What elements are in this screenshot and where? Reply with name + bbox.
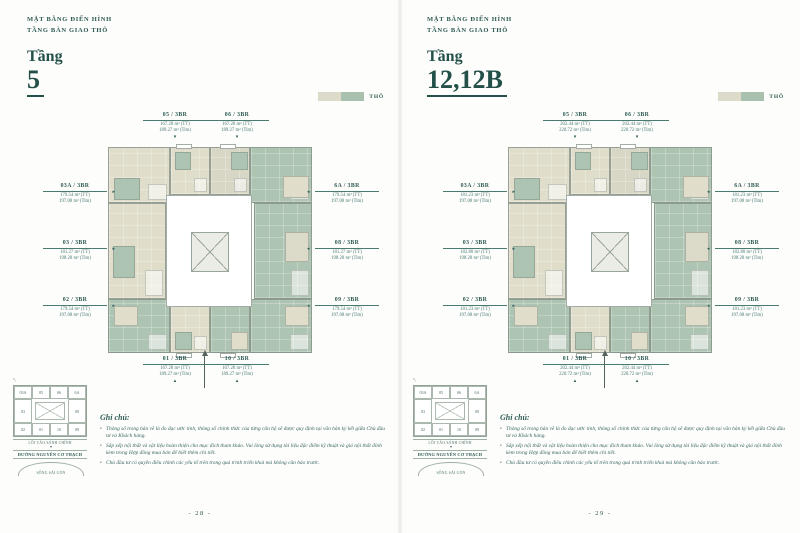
plan-unit-05 [570,147,610,195]
unit-label-09: 09 / 3BR 179.54 m² (TT) 197.08 m² (Tim) … [315,297,379,319]
page-right: MẶT BẰNG ĐIỂN HÌNH TẦNG BÀN GIAO THÔ Tần… [400,0,800,533]
page-title-line1: MẶT BẰNG ĐIỂN HÌNH [427,16,512,23]
page-title-line2: TẦNG BÀN GIAO THÔ [27,27,108,34]
plan-unit-02 [508,299,570,353]
unit-label-6a: 6A / 3BR 181.23 m² (TT) 197.08 m² (Tim) … [715,183,779,205]
minimap-grid: 03A 05 06 6A 03 08 02 01 10 09 [413,385,487,437]
minimap-grid: 03A 05 06 6A 03 08 02 01 10 09 [13,385,87,437]
plan-unit-03a [508,147,570,203]
unit-id: 03A / 3BR [443,183,507,192]
floor-number: 5 [27,67,44,97]
minimap-cell: 03 [14,399,32,423]
unit-label-05: 05 / 3BR 167.28 m² (TT) 189.27 m² (Tim) … [143,112,207,140]
plan-unit-03a [108,147,170,203]
river-curve: SÔNG SÀI GÒN [18,462,84,476]
north-arrow-icon [604,355,605,388]
page-number: - 28 - [0,510,400,517]
plan-unit-08 [654,203,712,299]
floor-word: Tầng [27,48,63,66]
unit-id: 06 / 3BR [605,112,669,121]
unit-label-08: 08 / 3BR 182.80 m² (TT) 198.28 m² (Tim) … [715,240,779,262]
unit-area-tim: 197.08 m² (Tim) [315,313,379,319]
minimap-cell: 02 [414,423,432,436]
unit-id: 08 / 3BR [315,240,379,249]
minimap-cell: 08 [468,399,486,423]
leader-up-icon: ▴ [143,379,207,384]
page-number: - 29 - [400,510,800,517]
page-title-line2: TẦNG BÀN GIAO THÔ [427,27,508,34]
plan-unit-01 [570,305,610,353]
unit-id: 01 / 3BR [543,356,607,365]
plan-unit-03 [508,203,566,299]
minimap-cell: 6A [468,386,486,399]
unit-label-02: 02 / 3BR 181.23 m² (TT) 197.08 m² (Tim) … [443,297,507,319]
unit-id: 10 / 3BR [605,356,669,365]
pen-mark-icon: ↑ [11,376,19,384]
note-text: Chủ đầu tư có quyền điều chỉnh các yếu t… [506,460,720,467]
core-icon [191,232,229,272]
minimap-cell: 01 [432,423,450,436]
unit-area-tim: 220.72 m² (Tim) [543,128,607,134]
floor-number: 12,12B [427,67,507,97]
note-text: Sắp xếp nội thất và vật liệu hoàn thiện … [106,443,388,457]
unit-id: 08 / 3BR [715,240,779,249]
unit-label-01: 01 / 3BR 167.28 m² (TT) 189.27 m² (Tim) … [143,356,207,384]
leader-right-icon: ▸ [512,304,515,309]
unit-area-tim: 197.08 m² (Tim) [443,199,507,205]
leader-up-icon: ▴ [543,379,607,384]
unit-area-tim: 220.72 m² (Tim) [543,372,607,378]
plan-unit-6a [250,147,312,203]
plan-unit-09 [650,299,712,353]
unit-id: 02 / 3BR [43,297,107,306]
note-item: • Sắp xếp nội thất và vật liệu hoàn thiệ… [500,443,788,457]
core-icon [35,402,65,420]
leader-right-icon: ▸ [112,190,115,195]
leader-down-icon: ▾ [543,135,607,140]
minimap-cell: 01 [32,423,50,436]
notes-section: Ghi chú: • Thông số trong bản vẽ là đo đ… [100,413,388,470]
leader-up-icon: ▴ [205,379,269,384]
courtyard [166,195,252,307]
leader-down-icon: ▾ [205,135,269,140]
minimap-cell: 10 [450,423,468,436]
plan-unit-10 [610,305,650,353]
minimap-cell: 09 [468,423,486,436]
floor-plan [108,147,312,353]
unit-id: 09 / 3BR [715,297,779,306]
leader-right-icon: ▸ [512,247,515,252]
plan-unit-05 [170,147,210,195]
unit-area-tim: 197.08 m² (Tim) [443,313,507,319]
unit-area-tim: 189.27 m² (Tim) [205,372,269,378]
unit-id: 03 / 3BR [443,240,507,249]
plan-unit-06 [610,147,650,195]
leader-left-icon: ◂ [307,247,310,252]
minimap-cell: 05 [32,386,50,399]
legend-swatch-green [741,92,764,101]
leader-up-icon: ▴ [605,379,669,384]
minimap-cell: 05 [432,386,450,399]
plan-unit-02 [108,299,170,353]
site-minimap: ↑ 03A 05 06 6A 03 08 02 01 10 09 [13,385,89,476]
north-arrow-icon [204,355,205,388]
unit-label-03: 03 / 3BR 181.27 m² (TT) 198.28 m² (Tim) … [43,240,107,262]
unit-id: 01 / 3BR [143,356,207,365]
minimap-cell: 03A [414,386,432,399]
note-item: • Chủ đầu tư có quyền điều chỉnh các yếu… [500,460,788,467]
unit-area-tim: 197.08 m² (Tim) [715,313,779,319]
plan-unit-03 [108,203,166,299]
unit-label-03a: 03A / 3BR 179.54 m² (TT) 197.08 m² (Tim)… [43,183,107,205]
leader-right-icon: ▸ [512,190,515,195]
unit-id: 06 / 3BR [205,112,269,121]
legend-swatch-beige [718,92,741,101]
unit-id: 6A / 3BR [715,183,779,192]
unit-id: 09 / 3BR [315,297,379,306]
legend: THÔ [718,92,784,101]
river-curve: SÔNG SÀI GÒN [418,462,484,476]
unit-label-6a: 6A / 3BR 179.54 m² (TT) 197.08 m² (Tim) … [315,183,379,205]
unit-area-tim: 198.28 m² (Tim) [715,256,779,262]
plan-unit-09 [250,299,312,353]
minimap-cell: 10 [50,423,68,436]
unit-area-tim: 197.08 m² (Tim) [43,313,107,319]
core-icon [435,402,465,420]
notes-title: Ghi chú: [100,413,388,422]
legend-swatch-green [341,92,364,101]
minimap-cell: 03A [14,386,32,399]
river-label: SÔNG SÀI GÒN [419,471,483,475]
page-left: MẶT BẰNG ĐIỂN HÌNH TẦNG BÀN GIAO THÔ Tần… [0,0,400,533]
unit-area-tim: 198.28 m² (Tim) [443,256,507,262]
unit-id: 10 / 3BR [205,356,269,365]
minimap-cell: 08 [68,399,86,423]
page-title-line1: MẶT BẰNG ĐIỂN HÌNH [27,16,112,23]
leader-left-icon: ◂ [707,304,710,309]
balcony-tab [220,144,236,149]
minimap-cell: 03 [414,399,432,423]
unit-label-03a: 03A / 3BR 181.23 m² (TT) 197.08 m² (Tim)… [443,183,507,205]
minimap-cell: 6A [68,386,86,399]
unit-area-tim: 189.27 m² (Tim) [143,128,207,134]
street-label: ĐƯỜNG NGUYỄN CƠ THẠCH [13,450,87,459]
note-item: • Sắp xếp nội thất và vật liệu hoàn thiệ… [100,443,388,457]
river-label: SÔNG SÀI GÒN [19,471,83,475]
unit-area-tim: 220.72 m² (Tim) [605,128,669,134]
unit-id: 05 / 3BR [543,112,607,121]
legend-label: THÔ [369,94,384,100]
core-icon [591,232,629,272]
unit-label-06: 06 / 3BR 167.28 m² (TT) 189.27 m² (Tim) … [205,112,269,140]
plan-unit-10 [210,305,250,353]
unit-label-10: 10 / 3BR 202.44 m² (TT) 220.72 m² (Tim) … [605,356,669,384]
unit-area-tim: 198.28 m² (Tim) [43,256,107,262]
brochure-spread: MẶT BẰNG ĐIỂN HÌNH TẦNG BÀN GIAO THÔ Tần… [0,0,800,533]
unit-area-tim: 197.08 m² (Tim) [315,199,379,205]
leader-left-icon: ◂ [707,247,710,252]
leader-down-icon: ▾ [143,135,207,140]
plan-unit-6a [650,147,712,203]
minimap-cell: 06 [450,386,468,399]
courtyard [566,195,652,307]
note-item: • Thông số trong bản vẽ là đo đạc ước tí… [100,426,388,440]
legend: THÔ [318,92,384,101]
note-item: • Chủ đầu tư có quyền điều chỉnh các yếu… [100,460,388,467]
floor-word: Tầng [427,48,463,66]
note-text: Thông số trong bản vẽ là đo đạc ước tính… [106,426,388,440]
unit-area-tim: 197.08 m² (Tim) [715,199,779,205]
unit-label-08: 08 / 3BR 181.27 m² (TT) 198.28 m² (Tim) … [315,240,379,262]
note-text: Sắp xếp nội thất và vật liệu hoàn thiện … [506,443,788,457]
leader-right-icon: ▸ [112,247,115,252]
unit-label-06: 06 / 3BR 202.44 m² (TT) 220.72 m² (Tim) … [605,112,669,140]
leader-left-icon: ◂ [307,304,310,309]
leader-left-icon: ◂ [707,190,710,195]
unit-area-tim: 198.28 m² (Tim) [315,256,379,262]
note-text: Thông số trong bản vẽ là đo đạc ước tính… [506,426,788,440]
unit-id: 6A / 3BR [315,183,379,192]
unit-area-tim: 189.27 m² (Tim) [143,372,207,378]
notes-title: Ghi chú: [500,413,788,422]
site-minimap: ↑ 03A 05 06 6A 03 08 02 01 10 09 [413,385,489,476]
legend-swatch-beige [318,92,341,101]
unit-id: 05 / 3BR [143,112,207,121]
pen-mark-icon: ↑ [411,376,419,384]
floor-plan [508,147,712,353]
notes-section: Ghi chú: • Thông số trong bản vẽ là đo đ… [500,413,788,470]
minimap-cell: 02 [14,423,32,436]
street-label: ĐƯỜNG NGUYỄN CƠ THẠCH [413,450,487,459]
note-text: Chủ đầu tư có quyền điều chỉnh các yếu t… [106,460,320,467]
unit-area-tim: 189.27 m² (Tim) [205,128,269,134]
page-gutter [397,0,403,533]
balcony-tab [576,144,592,149]
leader-left-icon: ◂ [307,190,310,195]
balcony-tab [176,144,192,149]
unit-id: 03 / 3BR [43,240,107,249]
unit-label-03: 03 / 3BR 182.80 m² (TT) 198.28 m² (Tim) … [443,240,507,262]
unit-label-05: 05 / 3BR 202.44 m² (TT) 220.72 m² (Tim) … [543,112,607,140]
unit-area-tim: 220.72 m² (Tim) [605,372,669,378]
leader-right-icon: ▸ [112,304,115,309]
balcony-tab [620,144,636,149]
entrance-caret-icon: ▾ [413,445,489,449]
unit-label-10: 10 / 3BR 167.28 m² (TT) 189.27 m² (Tim) … [205,356,269,384]
plan-unit-01 [170,305,210,353]
legend-label: THÔ [769,94,784,100]
unit-label-01: 01 / 3BR 202.44 m² (TT) 220.72 m² (Tim) … [543,356,607,384]
minimap-cell: 09 [68,423,86,436]
unit-area-tim: 197.08 m² (Tim) [43,199,107,205]
unit-label-02: 02 / 3BR 179.54 m² (TT) 197.08 m² (Tim) … [43,297,107,319]
entrance-caret-icon: ▾ [13,445,89,449]
unit-label-09: 09 / 3BR 181.23 m² (TT) 197.08 m² (Tim) … [715,297,779,319]
note-item: • Thông số trong bản vẽ là đo đạc ước tí… [500,426,788,440]
unit-id: 03A / 3BR [43,183,107,192]
plan-unit-08 [254,203,312,299]
leader-down-icon: ▾ [605,135,669,140]
unit-id: 02 / 3BR [443,297,507,306]
plan-unit-06 [210,147,250,195]
minimap-cell: 06 [50,386,68,399]
